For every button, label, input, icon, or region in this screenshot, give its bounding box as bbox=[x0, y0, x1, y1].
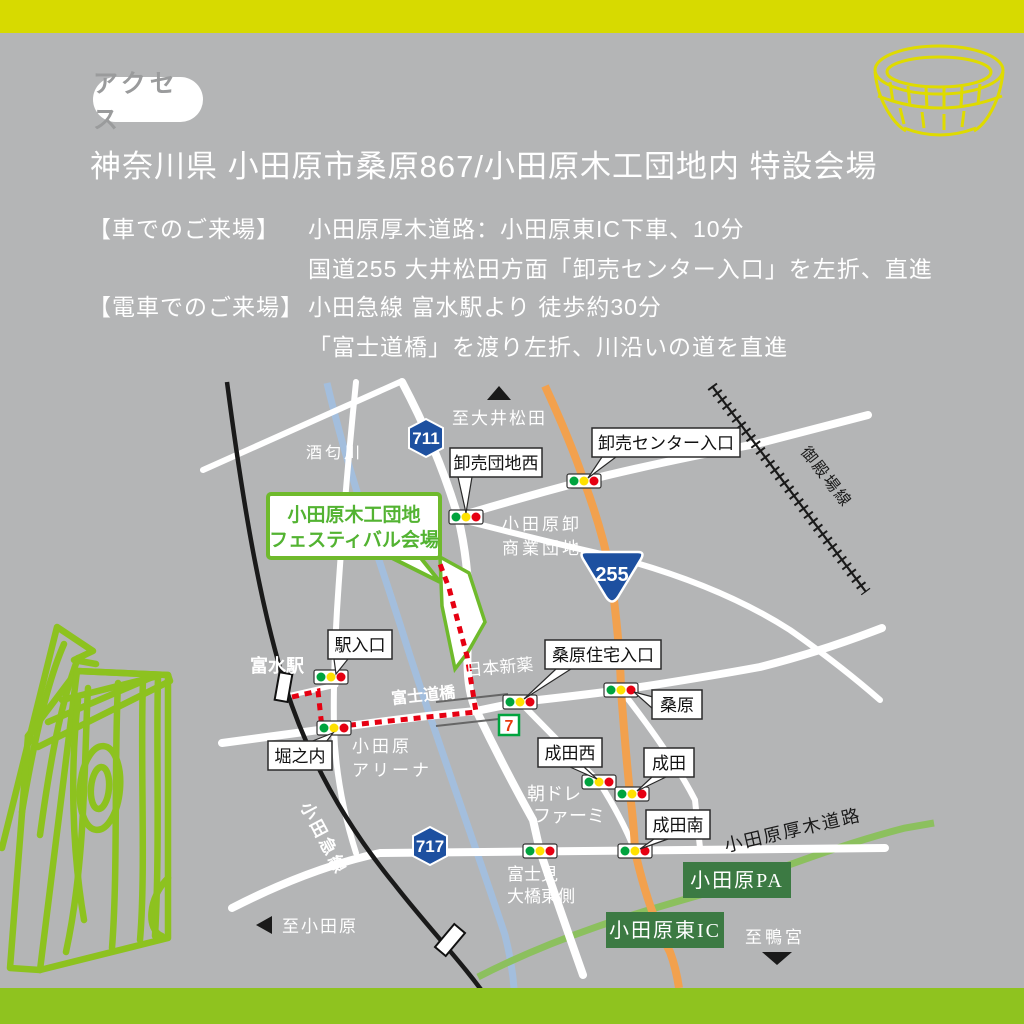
to-kamonomiya-marker: 至鴨宮 bbox=[745, 928, 805, 965]
arena-label-2: アリーナ bbox=[352, 761, 432, 780]
odawara-higashi-ic-box: 小田原東IC bbox=[606, 912, 724, 948]
wood-blocks-illustration bbox=[2, 627, 170, 970]
svg-text:至鴨宮: 至鴨宮 bbox=[745, 928, 805, 947]
signal-horinouchi bbox=[317, 721, 351, 735]
venue-address: 神奈川県 小田原市桑原867/小田原木工団地内 特設会場 bbox=[90, 141, 878, 186]
train-access-line-2: 「富士道橋」を渡り左折、川沿いの道を直進 bbox=[308, 328, 788, 362]
signal-kuwahara bbox=[604, 683, 638, 697]
svg-text:小田原木工団地: 小田原木工団地 bbox=[287, 503, 420, 526]
signal-eki-iriguchi bbox=[314, 670, 348, 684]
venue-area-polygon bbox=[440, 557, 485, 669]
svg-text:フェスティバル会場: フェスティバル会場 bbox=[269, 528, 439, 551]
sakawa-river-label: 酒匂川 bbox=[306, 444, 363, 462]
car-access-label: 【車でのご来場】 bbox=[88, 210, 280, 244]
svg-text:桑原住宅入口: 桑原住宅入口 bbox=[552, 646, 654, 665]
signal-kuwahara-jutaku bbox=[503, 695, 537, 709]
route-shield-711: 711 bbox=[409, 419, 443, 457]
bottom-color-bar bbox=[0, 988, 1024, 1024]
venue-bubble: 小田原木工団地 フェスティバル会場 bbox=[268, 494, 440, 582]
svg-text:至大井松田: 至大井松田 bbox=[452, 409, 547, 428]
wooden-bowl-illustration bbox=[875, 46, 1003, 135]
route-shield-717: 717 bbox=[413, 827, 447, 865]
svg-text:711: 711 bbox=[412, 429, 439, 448]
svg-text:717: 717 bbox=[416, 837, 444, 856]
to-oimatsuda-marker: 至大井松田 bbox=[452, 386, 547, 428]
fujimi-label-2: 大橋東側 bbox=[507, 887, 575, 906]
svg-text:7: 7 bbox=[505, 718, 514, 735]
route-shield-255: 255 bbox=[582, 552, 643, 602]
access-badge: アクセス bbox=[93, 77, 203, 122]
top-color-bar bbox=[0, 0, 1024, 33]
fujimi-label-1: 富士見 bbox=[507, 865, 558, 884]
to-odawara-marker: 至小田原 bbox=[256, 916, 358, 936]
svg-text:卸売団地西: 卸売団地西 bbox=[454, 454, 539, 473]
signal-narita-nishi bbox=[582, 775, 616, 789]
nihon-shinyaku-label: 日本新薬 bbox=[465, 655, 534, 680]
svg-text:卸売センター入口: 卸売センター入口 bbox=[598, 434, 734, 453]
gotemba-line-label: 御殿場線 bbox=[797, 443, 856, 511]
svg-text:堀之内: 堀之内 bbox=[275, 747, 326, 766]
svg-text:小田原PA: 小田原PA bbox=[690, 869, 784, 892]
callout-eki-iriguchi: 駅入口 bbox=[328, 630, 392, 674]
oroshi-district-label-2: 商業団地 bbox=[502, 539, 582, 558]
car-access-line-2: 国道255 大井松田方面「卸売センター入口」を左折、直進 bbox=[308, 250, 933, 284]
car-access-line-1: 小田原厚木道路：小田原東IC下車、10分 bbox=[308, 210, 745, 244]
svg-text:至小田原: 至小田原 bbox=[282, 917, 358, 936]
svg-text:成田西: 成田西 bbox=[545, 744, 596, 763]
svg-text:駅入口: 駅入口 bbox=[335, 636, 386, 655]
asadore-label-1: 朝ドレ bbox=[527, 784, 581, 804]
svg-text:桑原: 桑原 bbox=[660, 696, 694, 715]
svg-text:小田原東IC: 小田原東IC bbox=[609, 919, 721, 942]
signal-fujimi-ohashi bbox=[523, 844, 557, 858]
arena-label-1: 小田原 bbox=[352, 737, 412, 756]
seven-eleven-icon: 7 bbox=[499, 715, 519, 735]
odawara-pa-box: 小田原PA bbox=[683, 862, 791, 898]
svg-text:255: 255 bbox=[595, 564, 628, 586]
train-access-line-1: 小田急線 富水駅より 徒歩約30分 bbox=[308, 288, 662, 322]
callout-kuwahara: 桑原 bbox=[634, 690, 702, 719]
tomizu-station-label: 富水駅 bbox=[250, 655, 305, 676]
svg-text:成田: 成田 bbox=[652, 754, 686, 773]
svg-text:成田南: 成田南 bbox=[653, 816, 704, 835]
fujimichi-bridge-label: 富士道橋 bbox=[390, 682, 457, 708]
signal-narita bbox=[615, 787, 649, 801]
access-page: 7 711 717 255 酒匂川 御殿場線 小田急線 富水駅 富士道橋 日本新… bbox=[0, 0, 1024, 1024]
oroshi-district-label-1: 小田原卸 bbox=[502, 515, 582, 534]
train-access-label: 【電車でのご来場】 bbox=[88, 288, 304, 322]
asadore-label-2: ファーミ bbox=[533, 806, 605, 826]
signal-oroshiuri-center bbox=[567, 474, 601, 488]
